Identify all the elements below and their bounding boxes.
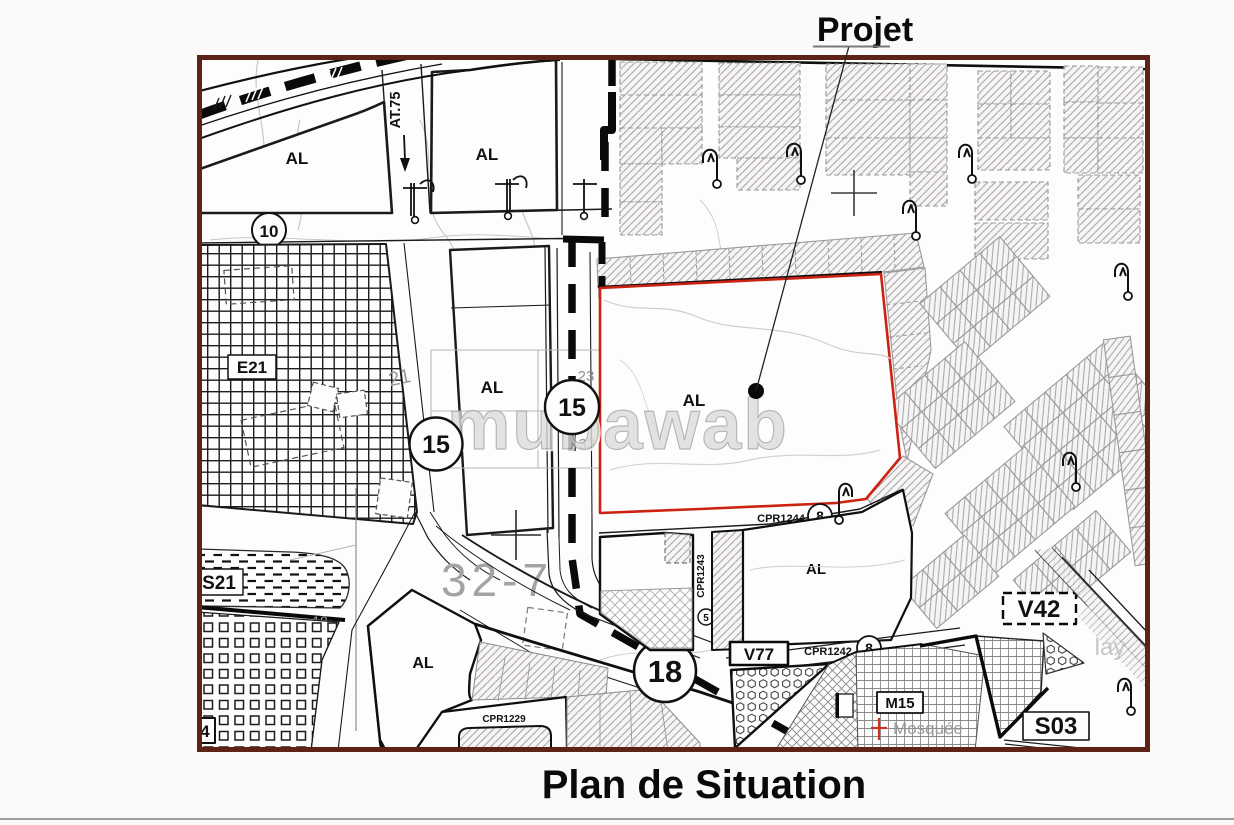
svg-text:CPR1243: CPR1243: [696, 554, 707, 598]
svg-text:mubawab: mubawab: [447, 386, 788, 465]
svg-text:10: 10: [260, 222, 279, 241]
svg-text:AL: AL: [412, 655, 434, 672]
svg-text:15: 15: [558, 394, 586, 422]
svg-text:CPR1229: CPR1229: [482, 714, 526, 725]
svg-text:lay: lay: [1095, 634, 1126, 661]
svg-text:S03: S03: [1035, 713, 1078, 740]
svg-text:V77: V77: [744, 645, 774, 664]
svg-text:15: 15: [422, 431, 450, 459]
svg-text:S21: S21: [202, 573, 236, 594]
svg-text:5: 5: [703, 613, 709, 624]
svg-text:AL: AL: [806, 561, 826, 578]
svg-text:Plan de Situation: Plan de Situation: [542, 763, 866, 807]
svg-text:V42: V42: [1018, 596, 1061, 623]
svg-text:AT.75: AT.75: [388, 92, 404, 129]
svg-text:AL: AL: [286, 149, 309, 168]
svg-text:AL: AL: [683, 391, 706, 410]
svg-text:AL: AL: [476, 145, 499, 164]
svg-text:E21: E21: [237, 358, 267, 377]
svg-text:18: 18: [648, 654, 682, 689]
svg-text:21: 21: [387, 365, 413, 391]
svg-text:Mosquée: Mosquée: [893, 719, 963, 738]
svg-text:Projet: Projet: [817, 11, 913, 49]
svg-text:M15: M15: [885, 695, 914, 712]
